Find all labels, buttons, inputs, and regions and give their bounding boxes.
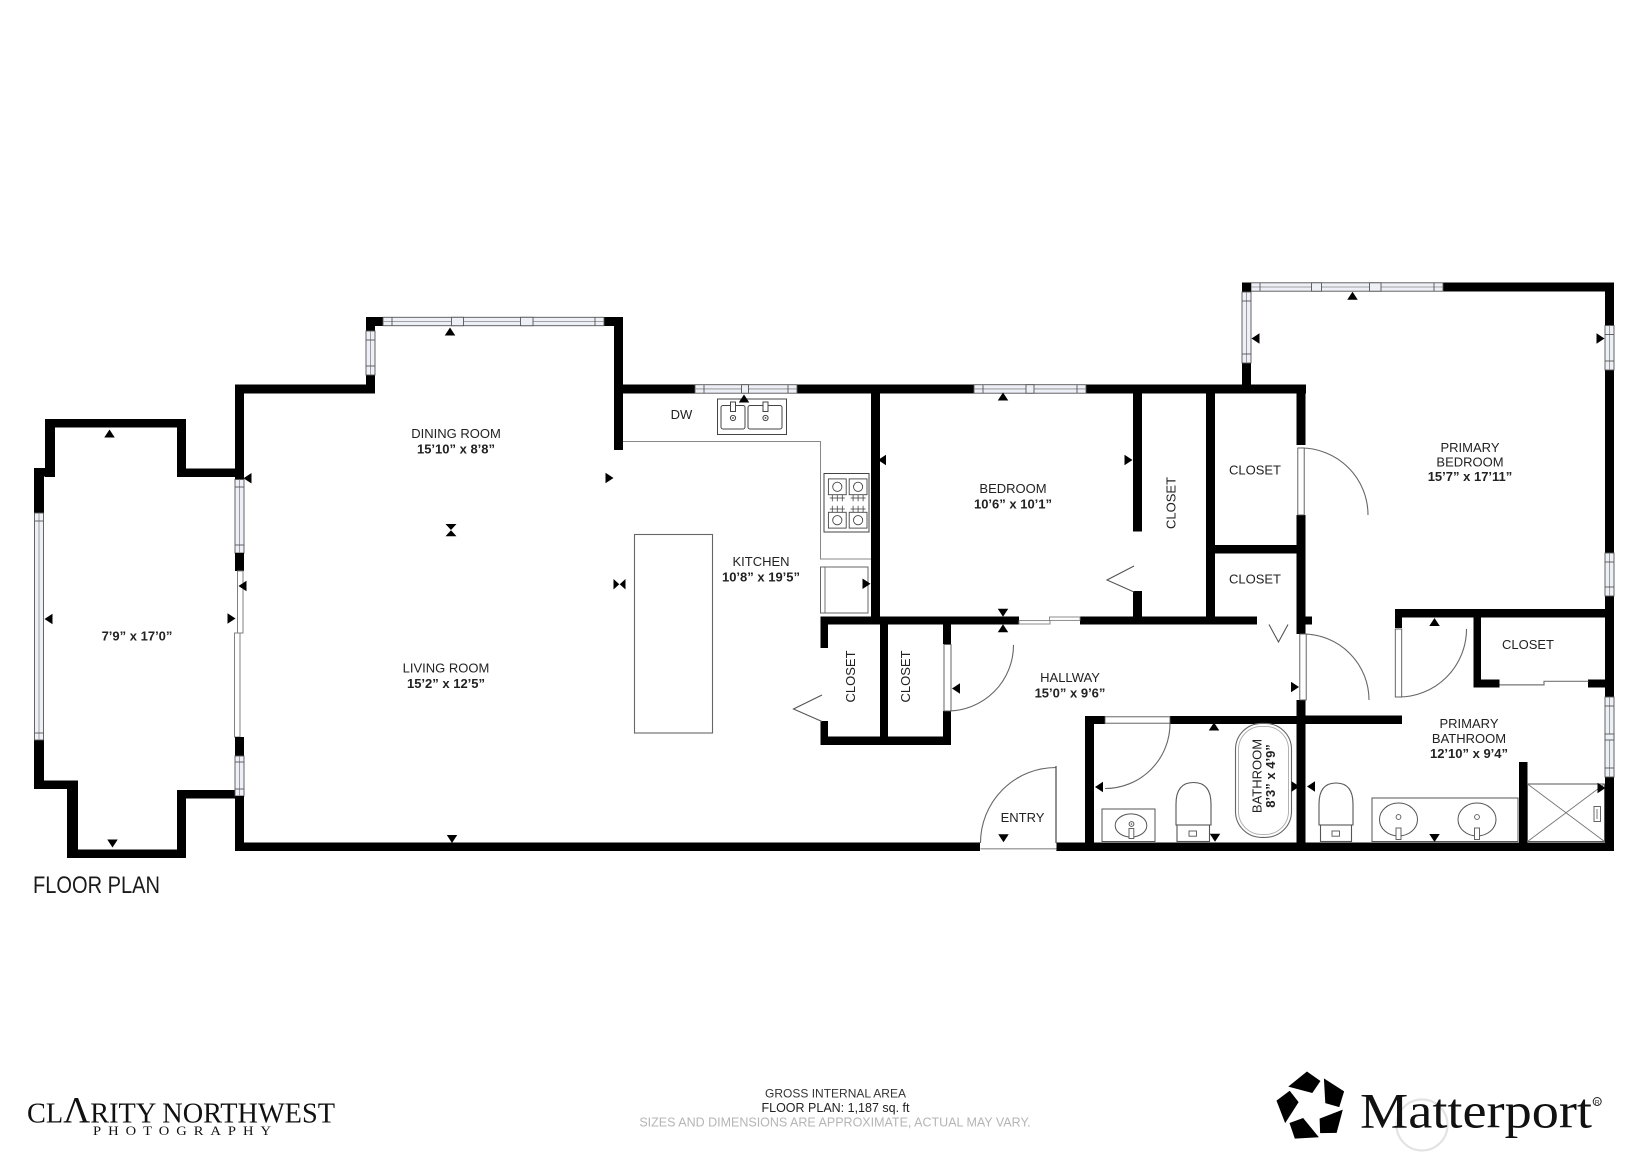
- svg-text:DW: DW: [671, 407, 693, 422]
- svg-text:15’10” x 8’8”: 15’10” x 8’8”: [417, 442, 495, 457]
- svg-text:BEDROOM: BEDROOM: [979, 481, 1046, 496]
- svg-text:CLOSET: CLOSET: [1164, 477, 1179, 529]
- svg-text:DINING ROOM: DINING ROOM: [411, 426, 501, 441]
- svg-text:KITCHEN: KITCHEN: [732, 554, 789, 569]
- svg-text:GROSS INTERNAL AREA: GROSS INTERNAL AREA: [765, 1087, 906, 1101]
- svg-text:12’10” x 9’4”: 12’10” x 9’4”: [1430, 746, 1508, 761]
- svg-text:CLOSET: CLOSET: [1229, 572, 1281, 587]
- svg-text:CLOSET: CLOSET: [898, 650, 913, 702]
- svg-text:FLOOR PLAN: 1,187 sq. ft: FLOOR PLAN: 1,187 sq. ft: [762, 1101, 911, 1115]
- svg-text:ENTRY: ENTRY: [1001, 810, 1045, 825]
- svg-text:15’0” x 9’6”: 15’0” x 9’6”: [1035, 686, 1106, 701]
- svg-text:FLOOR PLAN: FLOOR PLAN: [33, 872, 160, 899]
- svg-text:CLOSET: CLOSET: [1229, 463, 1281, 478]
- svg-text:PRIMARY: PRIMARY: [1441, 440, 1500, 455]
- svg-text:CLOSET: CLOSET: [843, 650, 858, 702]
- svg-text:PHOTOGRAPHY: PHOTOGRAPHY: [93, 1124, 278, 1138]
- svg-text:8’3” x 4’9”: 8’3” x 4’9”: [1263, 744, 1278, 808]
- svg-text:10’8” x 19’5”: 10’8” x 19’5”: [722, 570, 800, 585]
- svg-text:7’9” x 17’0”: 7’9” x 17’0”: [102, 629, 173, 644]
- svg-text:CLOSET: CLOSET: [1502, 637, 1554, 652]
- svg-text:R: R: [1595, 1100, 1600, 1107]
- svg-text:SIZES AND DIMENSIONS ARE APPRO: SIZES AND DIMENSIONS ARE APPROXIMATE, AC…: [639, 1116, 1030, 1130]
- svg-text:Matterport: Matterport: [1360, 1082, 1592, 1138]
- svg-text:BATHROOM: BATHROOM: [1432, 731, 1506, 746]
- svg-text:HALLWAY: HALLWAY: [1040, 670, 1100, 685]
- svg-text:BEDROOM: BEDROOM: [1436, 455, 1503, 470]
- svg-text:15’2” x 12’5”: 15’2” x 12’5”: [407, 676, 485, 691]
- svg-text:LIVING ROOM: LIVING ROOM: [403, 661, 490, 676]
- svg-text:PRIMARY: PRIMARY: [1440, 716, 1499, 731]
- svg-text:15’7” x 17’11”: 15’7” x 17’11”: [1428, 469, 1513, 484]
- svg-text:10’6” x 10’1”: 10’6” x 10’1”: [974, 497, 1052, 512]
